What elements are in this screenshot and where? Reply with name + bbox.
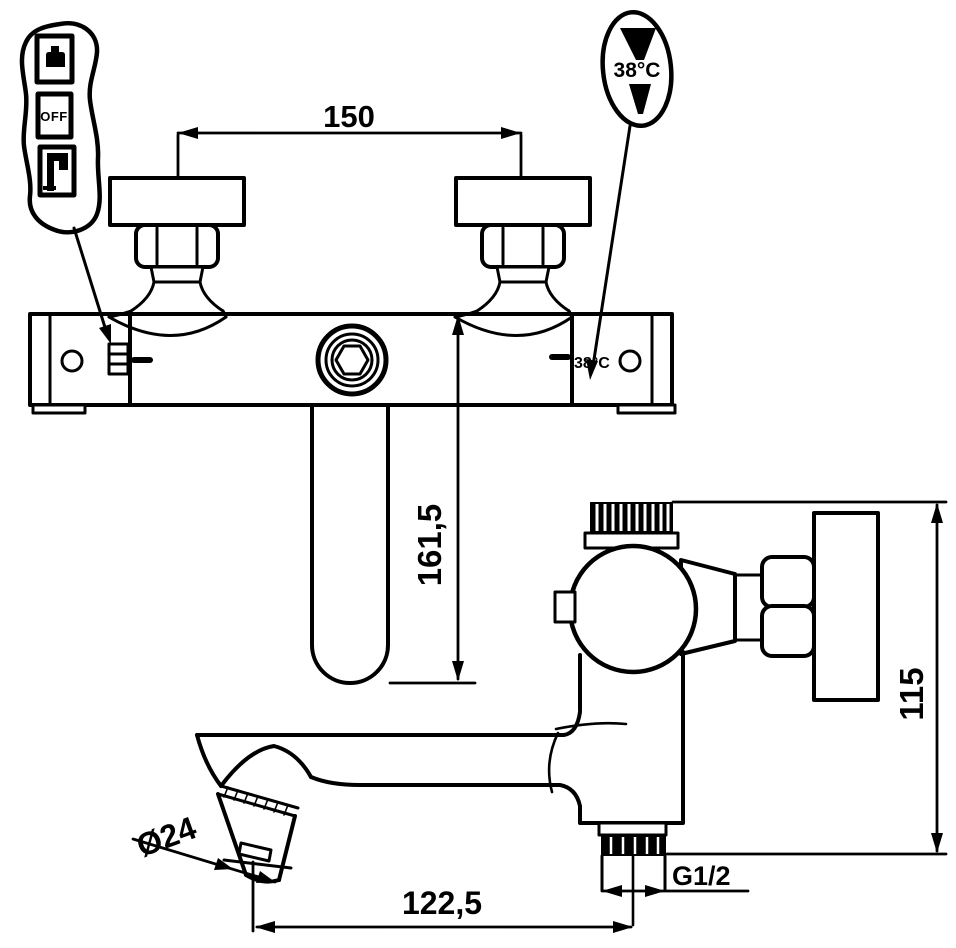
dim-161-5-label: 161,5 <box>411 504 448 587</box>
aerator-cap <box>239 843 271 861</box>
left-hex-nut <box>136 225 218 267</box>
dimension-115: 115 <box>893 503 943 853</box>
side-spout <box>197 712 626 882</box>
spout-saddle <box>556 723 626 729</box>
left-neck <box>151 267 203 282</box>
center-cap <box>318 326 386 394</box>
right-base-plate <box>618 405 675 413</box>
left-wall-flange <box>110 178 244 225</box>
right-wall-connection <box>455 178 590 336</box>
right-end-screw <box>620 351 640 371</box>
nozzle-cone <box>221 746 311 786</box>
side-hex-upper <box>762 557 814 607</box>
dim-115-label: 115 <box>893 667 930 720</box>
dim-122-5-label: 122,5 <box>402 885 482 921</box>
right-neck <box>497 267 549 282</box>
outlet-collar <box>599 823 666 835</box>
mode-callout: OFF <box>22 23 111 344</box>
front-spout <box>312 405 388 683</box>
right-hex-nut <box>482 225 564 267</box>
diverter-button <box>109 344 128 374</box>
hex-socket-icon <box>336 346 368 374</box>
bottom-outlet <box>599 823 666 925</box>
dimension-122-5: 122,5 <box>253 862 633 933</box>
valve-ball <box>570 546 696 672</box>
lower-body-block <box>580 652 683 823</box>
side-wall-flange <box>814 513 878 700</box>
temp-dial-label: 38°C <box>614 59 661 82</box>
ball-tab <box>555 592 575 622</box>
side-view: 115 G1/2 122,5 Ø24 <box>132 502 946 933</box>
dimension-150: 150 <box>178 99 521 176</box>
technical-drawing-faucet: 38°C <box>0 0 956 948</box>
dimension-g12: G1/2 <box>602 861 748 897</box>
side-hex-lower <box>762 606 814 656</box>
right-wall-flange <box>456 178 590 225</box>
drawing-canvas: 38°C <box>0 0 956 948</box>
left-wall-connection <box>109 178 244 336</box>
left-end-screw <box>62 351 82 371</box>
off-label: OFF <box>40 109 68 124</box>
dim-g12-label: G1/2 <box>672 861 731 891</box>
dim-150-label: 150 <box>323 99 375 134</box>
left-base-plate <box>33 405 85 413</box>
inlet-thread <box>585 502 678 548</box>
